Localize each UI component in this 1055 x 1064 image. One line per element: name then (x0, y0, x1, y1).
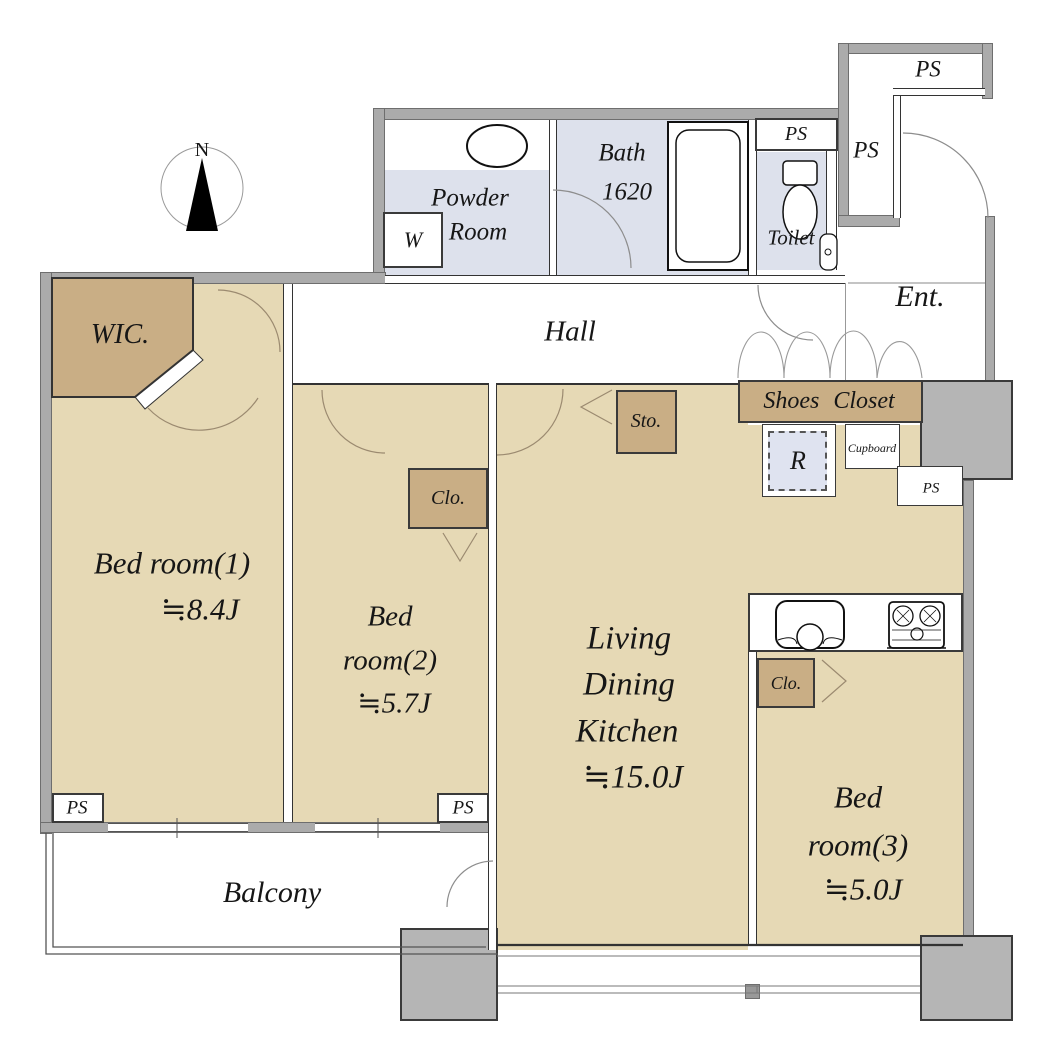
ps-label-bedroom2: PS (452, 799, 473, 818)
bedroom3-label-3: ≒5.0J (824, 874, 902, 905)
floor-plan: N Powder Room W Bath 1620 Toilet PS PS P… (0, 0, 1055, 1064)
bedroom2-label-1: Bed (367, 603, 412, 632)
ps-label-entry-mid: PS (853, 139, 879, 162)
ldk-label-2: Dining (583, 669, 675, 702)
wall-east-lower (963, 480, 974, 937)
column-south-middle (400, 928, 498, 1021)
wall-east-entrance (985, 216, 995, 382)
wall-junction-square (745, 984, 760, 999)
powder-room-label-2: Room (449, 220, 507, 245)
balcony-door-arc (447, 861, 493, 907)
bedroom1-label-1: Bed room(1) (94, 548, 250, 579)
washer-label: W (404, 229, 422, 251)
refrigerator-label: R (790, 448, 806, 474)
wall-entry-block-left (838, 43, 849, 218)
wall-entry-block-foot (838, 215, 900, 227)
bath-label-1: Bath (598, 141, 645, 166)
entrance-label: Ent. (895, 282, 944, 312)
room-toilet-floor (757, 152, 826, 270)
wall-sanitary-hall (385, 275, 845, 284)
bath-label-2: 1620 (602, 180, 652, 205)
compass-label: N (195, 140, 209, 160)
wall-west-outer (40, 272, 52, 834)
storage-label: Sto. (631, 411, 662, 431)
powder-room-label-1: Powder (431, 186, 509, 211)
cupboard-label: Cupboard (848, 442, 896, 454)
balcony-label: Balcony (223, 878, 321, 908)
column-east-upper (920, 380, 1013, 480)
bedroom2-label-3: ≒5.7J (357, 690, 430, 719)
wall-entry-block-top (838, 43, 993, 54)
bedroom3-label-1: Bed (834, 782, 882, 813)
window-bedroom1 (108, 823, 248, 832)
bedroom3-label-2: room(3) (808, 830, 908, 861)
room-bath-floor (557, 120, 755, 275)
closet-bedroom2-label: Clo. (431, 488, 465, 508)
ps-label-kitchen: PS (923, 482, 940, 497)
ldk-label-4: ≒15.0J (583, 762, 683, 795)
wall-northwest-top (40, 272, 386, 284)
ps-label-toilet: PS (785, 124, 807, 144)
toilet-label: Toilet (767, 228, 814, 249)
closet-bedroom3-label: Clo. (771, 674, 802, 692)
wall-bed2-ldk (488, 383, 497, 950)
bedroom1-label-2: ≒8.4J (161, 594, 239, 625)
south-window-lines (497, 956, 920, 993)
ps-label-entry-top: PS (915, 58, 941, 81)
shoes-closet-label: Shoes Closet (763, 389, 894, 413)
wall-ps-entry-horizontal (893, 88, 985, 96)
ldk-label-3: Kitchen (576, 716, 679, 749)
hall-label: Hall (544, 318, 596, 347)
ps-label-bedroom1: PS (66, 799, 87, 818)
entrance-step-line (845, 283, 846, 381)
column-east-lower (920, 935, 1013, 1021)
bedroom2-label-2: room(2) (343, 647, 437, 676)
wall-ps-entry-vertical (893, 88, 901, 218)
wic-label: WIC. (91, 321, 149, 349)
kitchen-counter (748, 593, 963, 652)
wall-powder-bath (549, 120, 557, 275)
window-bedroom2 (315, 823, 440, 832)
front-door-arc (903, 133, 988, 218)
wall-bed1-bed2 (283, 284, 293, 822)
ldk-label-1: Living (587, 623, 671, 656)
